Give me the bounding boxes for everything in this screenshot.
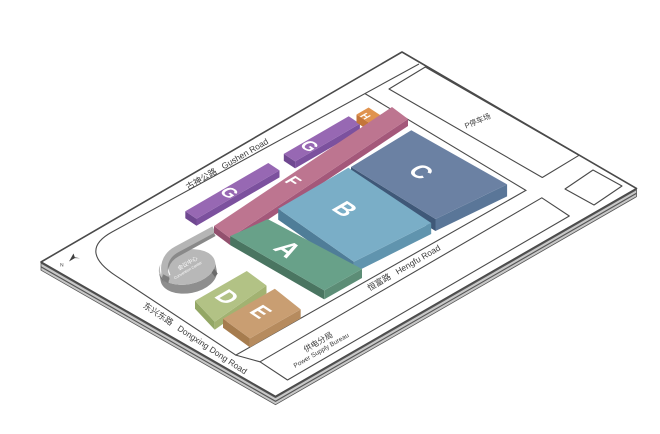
- svg-text:N: N: [60, 263, 64, 269]
